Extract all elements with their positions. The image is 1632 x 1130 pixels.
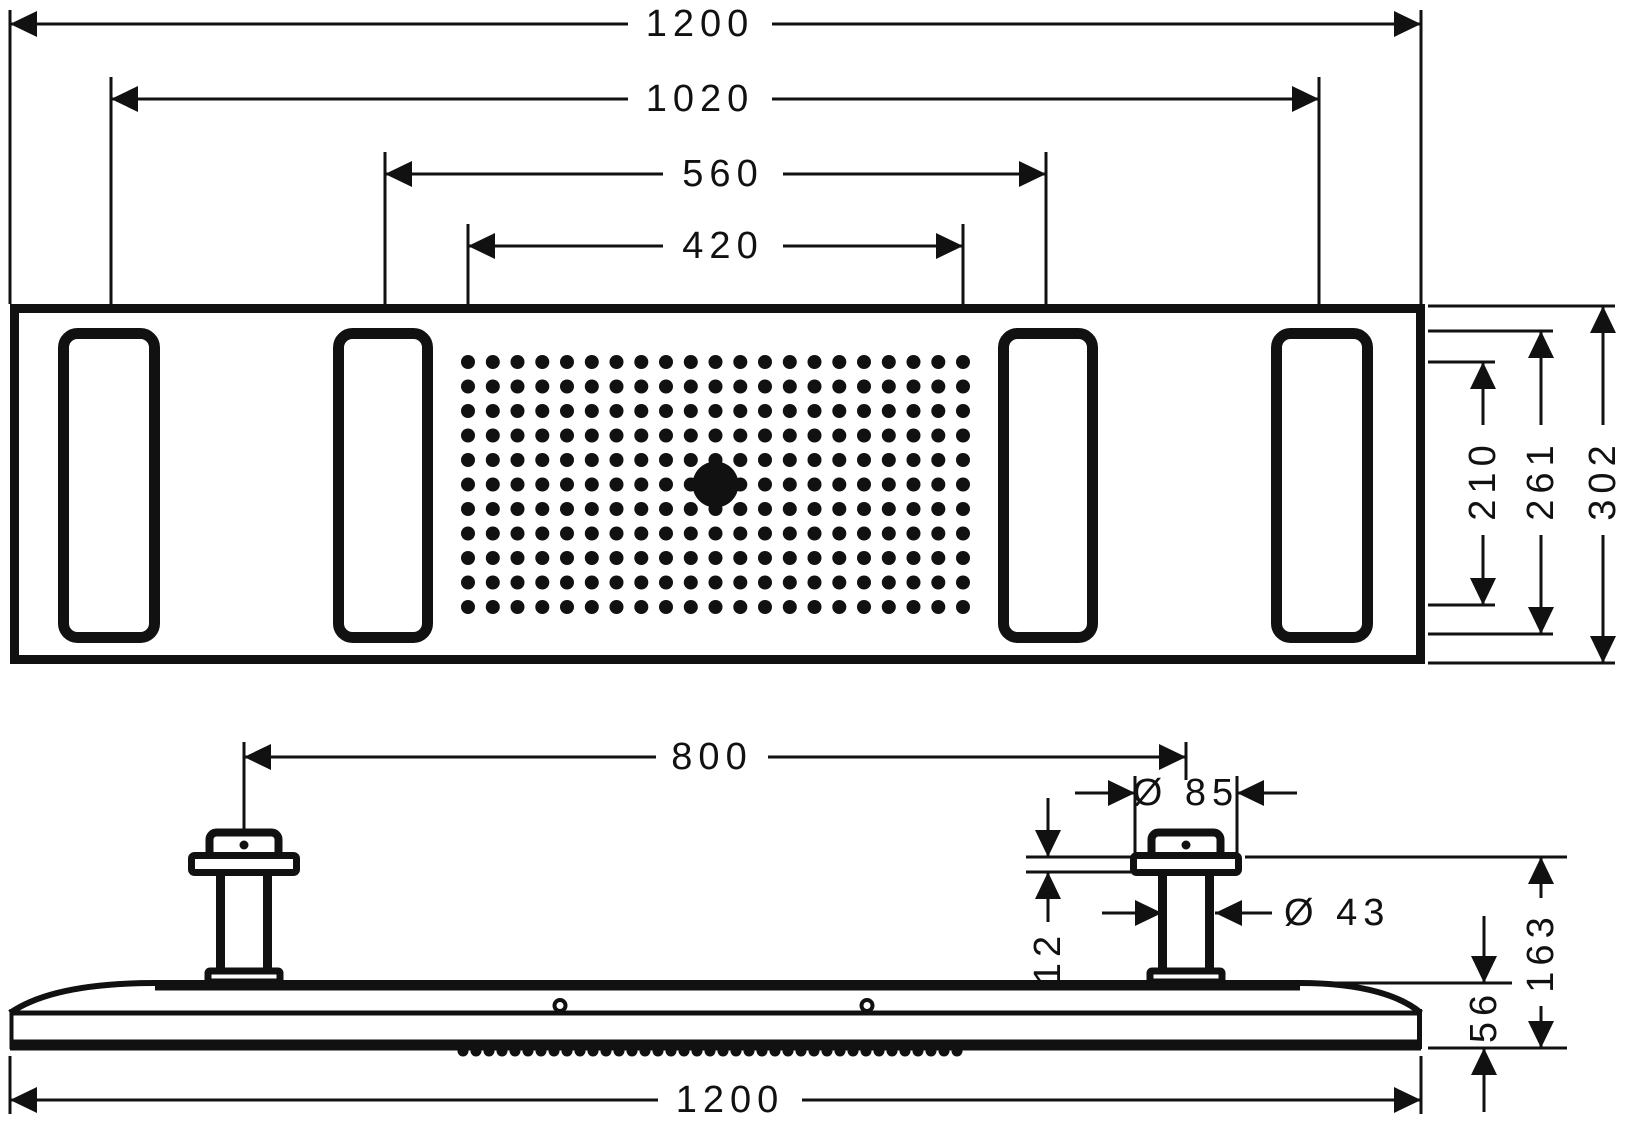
serration-tooth	[952, 1046, 963, 1057]
technical-drawing-page: 1200 1020 560 420 210 261 302 800 Ø 85 1…	[0, 0, 1632, 1130]
plan-slot-outer-right	[1277, 334, 1368, 638]
nozzle-dot	[684, 527, 698, 541]
dimension-arrowhead	[385, 161, 412, 187]
nozzle-dot	[610, 478, 624, 492]
nozzle-dot	[857, 551, 871, 565]
side-body-screw-bump-right	[862, 1000, 873, 1011]
nozzle-dot	[832, 380, 846, 394]
dim-label-163: 163	[1520, 911, 1562, 992]
nozzle-dot	[659, 404, 673, 418]
nozzle-dot	[857, 478, 871, 492]
nozzle-dot	[610, 380, 624, 394]
nozzle-dot	[585, 527, 599, 541]
nozzle-dot	[907, 380, 921, 394]
nozzle-dot	[907, 453, 921, 467]
nozzle-dot	[808, 600, 822, 614]
nozzle-dot	[733, 600, 747, 614]
nozzle-dot	[684, 453, 698, 467]
nozzle-dot	[535, 600, 549, 614]
nozzle-dot	[659, 478, 673, 492]
dim-label-56: 56	[1463, 989, 1505, 1043]
column-base-pad	[1150, 971, 1222, 982]
nozzle-dot	[832, 355, 846, 369]
nozzle-dot	[511, 380, 525, 394]
nozzle-dot	[560, 527, 574, 541]
nozzle-dot	[956, 429, 970, 443]
nozzle-dot	[931, 355, 945, 369]
nozzle-dot	[585, 551, 599, 565]
dimension-arrowhead	[1471, 1048, 1497, 1075]
nozzle-dot	[486, 429, 500, 443]
nozzle-dot	[709, 551, 723, 565]
serration-tooth	[640, 1046, 651, 1057]
nozzle-dot	[610, 453, 624, 467]
dim-label-302: 302	[1582, 439, 1624, 520]
nozzle-dot	[461, 404, 475, 418]
serration-tooth	[835, 1046, 846, 1057]
nozzle-dot	[956, 576, 970, 590]
nozzle-dot	[684, 502, 698, 516]
serration-tooth	[926, 1046, 937, 1057]
dimension-arrowhead	[1471, 956, 1497, 983]
dim-label-261: 261	[1520, 439, 1562, 520]
nozzle-dot	[684, 355, 698, 369]
nozzle-dot	[808, 404, 822, 418]
nozzle-dot	[560, 478, 574, 492]
nozzle-dot	[684, 600, 698, 614]
nozzle-dot	[659, 502, 673, 516]
nozzle-dot	[783, 380, 797, 394]
nozzle-dot	[783, 429, 797, 443]
nozzle-dot	[931, 551, 945, 565]
nozzle-dot	[733, 429, 747, 443]
serration-tooth	[575, 1046, 586, 1057]
nozzle-dot	[461, 453, 475, 467]
nozzle-dot	[610, 576, 624, 590]
nozzle-dot	[733, 502, 747, 516]
plan-extension-lines	[10, 10, 1615, 663]
nozzle-dot	[659, 527, 673, 541]
nozzle-dot	[634, 380, 648, 394]
nozzle-dot	[684, 576, 698, 590]
nozzle-dot	[808, 429, 822, 443]
nozzle-dot	[758, 404, 772, 418]
nozzle-dot	[585, 576, 599, 590]
serration-tooth	[666, 1046, 677, 1057]
nozzle-dot	[882, 527, 896, 541]
nozzle-dot	[832, 404, 846, 418]
nozzle-dot	[634, 600, 648, 614]
nozzle-dot	[832, 453, 846, 467]
nozzle-dot	[486, 502, 500, 516]
nozzle-dot	[733, 453, 747, 467]
nozzle-dot	[610, 429, 624, 443]
nozzle-dot	[783, 600, 797, 614]
dimension-arrowhead	[1470, 362, 1496, 389]
nozzle-dot	[585, 380, 599, 394]
nozzle-dot	[783, 478, 797, 492]
nozzle-dot	[634, 502, 648, 516]
nozzle-dot	[486, 527, 500, 541]
column-ceiling-flange	[192, 856, 297, 873]
dim-label-210: 210	[1462, 439, 1504, 520]
nozzle-dot	[461, 551, 475, 565]
nozzle-dot	[461, 576, 475, 590]
side-body	[10, 983, 1421, 1057]
nozzle-dot	[461, 527, 475, 541]
nozzle-dot	[659, 576, 673, 590]
nozzle-dot	[956, 527, 970, 541]
nozzle-dot	[832, 502, 846, 516]
nozzle-dot	[560, 600, 574, 614]
nozzle-dot	[758, 576, 772, 590]
nozzle-dot	[560, 502, 574, 516]
serration-tooth	[874, 1046, 885, 1057]
nozzle-dot	[461, 429, 475, 443]
dimension-arrowhead	[1528, 857, 1554, 884]
serration-tooth	[692, 1046, 703, 1057]
nozzle-dot	[857, 404, 871, 418]
nozzle-dot	[882, 551, 896, 565]
nozzle-dot	[956, 600, 970, 614]
dimension-arrowhead	[1470, 578, 1496, 605]
serration-tooth	[497, 1046, 508, 1057]
nozzle-dot	[511, 453, 525, 467]
technical-drawing-svg: 1200 1020 560 420 210 261 302 800 Ø 85 1…	[0, 0, 1632, 1130]
nozzle-dot	[535, 527, 549, 541]
nozzle-dot	[535, 380, 549, 394]
nozzle-dot	[634, 355, 648, 369]
nozzle-dot	[882, 429, 896, 443]
nozzle-dot	[560, 355, 574, 369]
nozzle-dot	[882, 502, 896, 516]
nozzle-dot	[634, 453, 648, 467]
nozzle-dot	[808, 576, 822, 590]
side-body-screw-bump-left	[555, 1000, 566, 1011]
nozzle-dot	[659, 429, 673, 443]
nozzle-dot	[709, 355, 723, 369]
plan-slot-inner-left	[339, 334, 428, 638]
nozzle-dot	[610, 527, 624, 541]
dimension-arrowhead	[1237, 780, 1264, 806]
nozzle-dot	[585, 429, 599, 443]
nozzle-dot	[560, 404, 574, 418]
nozzle-dot	[758, 527, 772, 541]
nozzle-dot	[709, 600, 723, 614]
nozzle-dot	[634, 404, 648, 418]
nozzle-dot	[535, 551, 549, 565]
serration-tooth	[523, 1046, 534, 1057]
nozzle-dot	[511, 502, 525, 516]
nozzle-dot	[560, 429, 574, 443]
nozzle-dot	[857, 600, 871, 614]
nozzle-dot	[832, 551, 846, 565]
nozzle-dot	[882, 600, 896, 614]
serration-tooth	[783, 1046, 794, 1057]
nozzle-dot	[684, 404, 698, 418]
nozzle-dot	[634, 478, 648, 492]
nozzle-dot	[560, 453, 574, 467]
nozzle-dot	[709, 576, 723, 590]
serration-tooth	[861, 1046, 872, 1057]
nozzle-dot	[931, 478, 945, 492]
nozzle-dot	[931, 600, 945, 614]
nozzle-dot	[659, 551, 673, 565]
nozzle-dot	[634, 527, 648, 541]
serration-tooth	[770, 1046, 781, 1057]
nozzle-dot	[758, 478, 772, 492]
nozzle-dot	[931, 453, 945, 467]
nozzle-dot	[808, 502, 822, 516]
serration-tooth	[744, 1046, 755, 1057]
plan-slot-outer-left	[64, 334, 155, 638]
nozzle-dot	[535, 404, 549, 418]
dimension-arrowhead	[1590, 306, 1616, 333]
column-ceiling-flange	[1134, 856, 1239, 873]
nozzle-dot	[907, 600, 921, 614]
nozzle-dot	[882, 380, 896, 394]
nozzle-dot	[956, 502, 970, 516]
dimension-arrowhead	[1292, 86, 1319, 112]
dimension-arrowhead	[1394, 11, 1421, 37]
dimension-arrowhead	[1528, 607, 1554, 634]
nozzle-dot	[535, 576, 549, 590]
nozzle-dot	[808, 453, 822, 467]
nozzle-dot	[758, 355, 772, 369]
nozzle-dot	[610, 355, 624, 369]
nozzle-dot	[511, 576, 525, 590]
nozzle-dot	[956, 355, 970, 369]
nozzle-dot	[907, 527, 921, 541]
nozzle-dot	[461, 355, 475, 369]
nozzle-dot	[857, 380, 871, 394]
nozzle-dot	[511, 429, 525, 443]
nozzle-dot	[832, 600, 846, 614]
nozzle-dot	[560, 551, 574, 565]
dimension-arrowhead	[244, 744, 271, 770]
nozzle-dot	[956, 380, 970, 394]
nozzle-dot	[461, 380, 475, 394]
dim-label-1200-top: 1200	[646, 3, 755, 45]
dim-label-1020: 1020	[646, 78, 755, 120]
nozzle-dot	[659, 453, 673, 467]
nozzle-dot	[659, 380, 673, 394]
nozzle-dot	[585, 600, 599, 614]
nozzle-dot	[857, 576, 871, 590]
serration-tooth	[848, 1046, 859, 1057]
nozzle-dot	[832, 478, 846, 492]
nozzle-dot	[758, 502, 772, 516]
nozzle-dot	[511, 404, 525, 418]
nozzle-dot	[832, 429, 846, 443]
nozzle-dot	[733, 380, 747, 394]
nozzle-dot	[610, 600, 624, 614]
nozzle-dot	[857, 429, 871, 443]
nozzle-dot	[585, 404, 599, 418]
nozzle-dot	[783, 502, 797, 516]
nozzle-dot	[684, 551, 698, 565]
serration-tooth	[614, 1046, 625, 1057]
nozzle-dot	[931, 576, 945, 590]
dimension-arrowhead	[1035, 872, 1061, 899]
serration-tooth	[588, 1046, 599, 1057]
nozzle-dot	[956, 404, 970, 418]
serration-tooth	[887, 1046, 898, 1057]
dim-label-420: 420	[682, 225, 763, 267]
nozzle-dot	[733, 404, 747, 418]
nozzle-dot	[882, 355, 896, 369]
dim-label-dia85: Ø 85	[1133, 772, 1239, 814]
side-view: 800 Ø 85 12 Ø 43 163 56 1200	[10, 736, 1567, 1121]
nozzle-dot	[535, 453, 549, 467]
nozzle-dot	[758, 551, 772, 565]
dimension-arrowhead	[10, 1087, 37, 1113]
serration-tooth	[458, 1046, 469, 1057]
serration-tooth	[653, 1046, 664, 1057]
nozzle-dot	[511, 527, 525, 541]
nozzle-dot	[956, 551, 970, 565]
nozzle-dot	[783, 404, 797, 418]
nozzle-dot	[808, 478, 822, 492]
dimension-arrowhead	[1108, 780, 1135, 806]
nozzle-dot	[758, 453, 772, 467]
nozzle-dot	[808, 380, 822, 394]
dimension-arrowhead	[1035, 830, 1061, 857]
nozzle-dot	[486, 478, 500, 492]
dim-label-12: 12	[1027, 930, 1069, 984]
serration-tooth	[718, 1046, 729, 1057]
plan-dimension-lines	[10, 11, 1616, 663]
nozzle-dot	[733, 355, 747, 369]
nozzle-dot	[882, 404, 896, 418]
dimension-arrowhead	[1528, 331, 1554, 358]
dimension-arrowhead	[10, 11, 37, 37]
dimension-arrowhead	[1019, 161, 1046, 187]
serration-tooth	[484, 1046, 495, 1057]
nozzle-dot	[486, 551, 500, 565]
serration-tooth	[471, 1046, 482, 1057]
side-column-left	[192, 833, 297, 983]
nozzle-dot	[931, 502, 945, 516]
nozzle-dot	[610, 502, 624, 516]
nozzle-dot	[857, 527, 871, 541]
nozzle-dot	[931, 404, 945, 418]
nozzle-dot	[461, 502, 475, 516]
nozzle-dot	[634, 576, 648, 590]
serration-tooth	[536, 1046, 547, 1057]
nozzle-dot	[511, 600, 525, 614]
nozzle-dot	[585, 502, 599, 516]
serration-tooth	[809, 1046, 820, 1057]
nozzle-dot	[585, 355, 599, 369]
nozzle-dot	[931, 380, 945, 394]
dimension-arrowhead	[1215, 900, 1242, 926]
nozzle-dot	[733, 551, 747, 565]
nozzle-dot	[486, 600, 500, 614]
serration-tooth	[913, 1046, 924, 1057]
serration-tooth	[705, 1046, 716, 1057]
nozzle-dot	[956, 478, 970, 492]
nozzle-dot	[808, 527, 822, 541]
dimension-arrowhead	[111, 86, 138, 112]
nozzle-dot	[709, 429, 723, 443]
nozzle-dot	[585, 453, 599, 467]
nozzle-dot	[733, 576, 747, 590]
nozzle-dot	[857, 453, 871, 467]
nozzle-dot	[659, 355, 673, 369]
nozzle-dot	[857, 502, 871, 516]
nozzle-dot	[931, 429, 945, 443]
nozzle-dot	[931, 527, 945, 541]
column-plate-dot	[1182, 841, 1191, 850]
nozzle-dot	[783, 355, 797, 369]
nozzle-dot	[783, 453, 797, 467]
side-mounting-columns	[192, 833, 1239, 983]
column-plate-dot	[240, 841, 249, 850]
serration-tooth	[627, 1046, 638, 1057]
nozzle-dot	[808, 355, 822, 369]
nozzle-dot	[684, 429, 698, 443]
nozzle-dot	[907, 551, 921, 565]
nozzle-dot	[486, 453, 500, 467]
nozzle-dot	[832, 527, 846, 541]
nozzle-dot	[486, 404, 500, 418]
nozzle-dot	[560, 576, 574, 590]
nozzle-dot	[956, 453, 970, 467]
nozzle-dot	[709, 404, 723, 418]
nozzle-dot	[610, 551, 624, 565]
nozzle-dot	[461, 478, 475, 492]
nozzle-dot	[907, 355, 921, 369]
nozzle-dot	[535, 355, 549, 369]
nozzle-dot	[709, 527, 723, 541]
nozzle-dot	[659, 600, 673, 614]
nozzle-dot	[808, 551, 822, 565]
nozzle-dot	[610, 404, 624, 418]
dimension-arrowhead	[936, 233, 963, 259]
nozzle-dot	[511, 551, 525, 565]
nozzle-dot	[535, 429, 549, 443]
serration-tooth	[757, 1046, 768, 1057]
serration-tooth	[549, 1046, 560, 1057]
serration-tooth	[939, 1046, 950, 1057]
nozzle-dot	[684, 380, 698, 394]
nozzle-dot	[783, 551, 797, 565]
plan-view: 1200 1020 560 420 210 261 302	[10, 3, 1624, 663]
nozzle-dot	[709, 380, 723, 394]
plan-center-nozzle	[693, 462, 739, 508]
nozzle-dot	[560, 380, 574, 394]
nozzle-dot	[907, 478, 921, 492]
nozzle-dot	[511, 478, 525, 492]
nozzle-dot	[461, 600, 475, 614]
plan-slot-inner-right	[1004, 334, 1093, 638]
nozzle-dot	[907, 576, 921, 590]
serration-tooth	[562, 1046, 573, 1057]
nozzle-dot	[486, 355, 500, 369]
nozzle-dot	[511, 355, 525, 369]
nozzle-dot	[882, 576, 896, 590]
dimension-arrowhead	[1528, 1021, 1554, 1048]
nozzle-dot	[758, 600, 772, 614]
dim-label-800: 800	[671, 736, 752, 778]
nozzle-dot	[783, 576, 797, 590]
nozzle-dot	[882, 453, 896, 467]
serration-tooth	[900, 1046, 911, 1057]
dimension-arrowhead	[1159, 744, 1186, 770]
dim-label-dia43: Ø 43	[1284, 892, 1390, 934]
nozzle-dot	[832, 576, 846, 590]
